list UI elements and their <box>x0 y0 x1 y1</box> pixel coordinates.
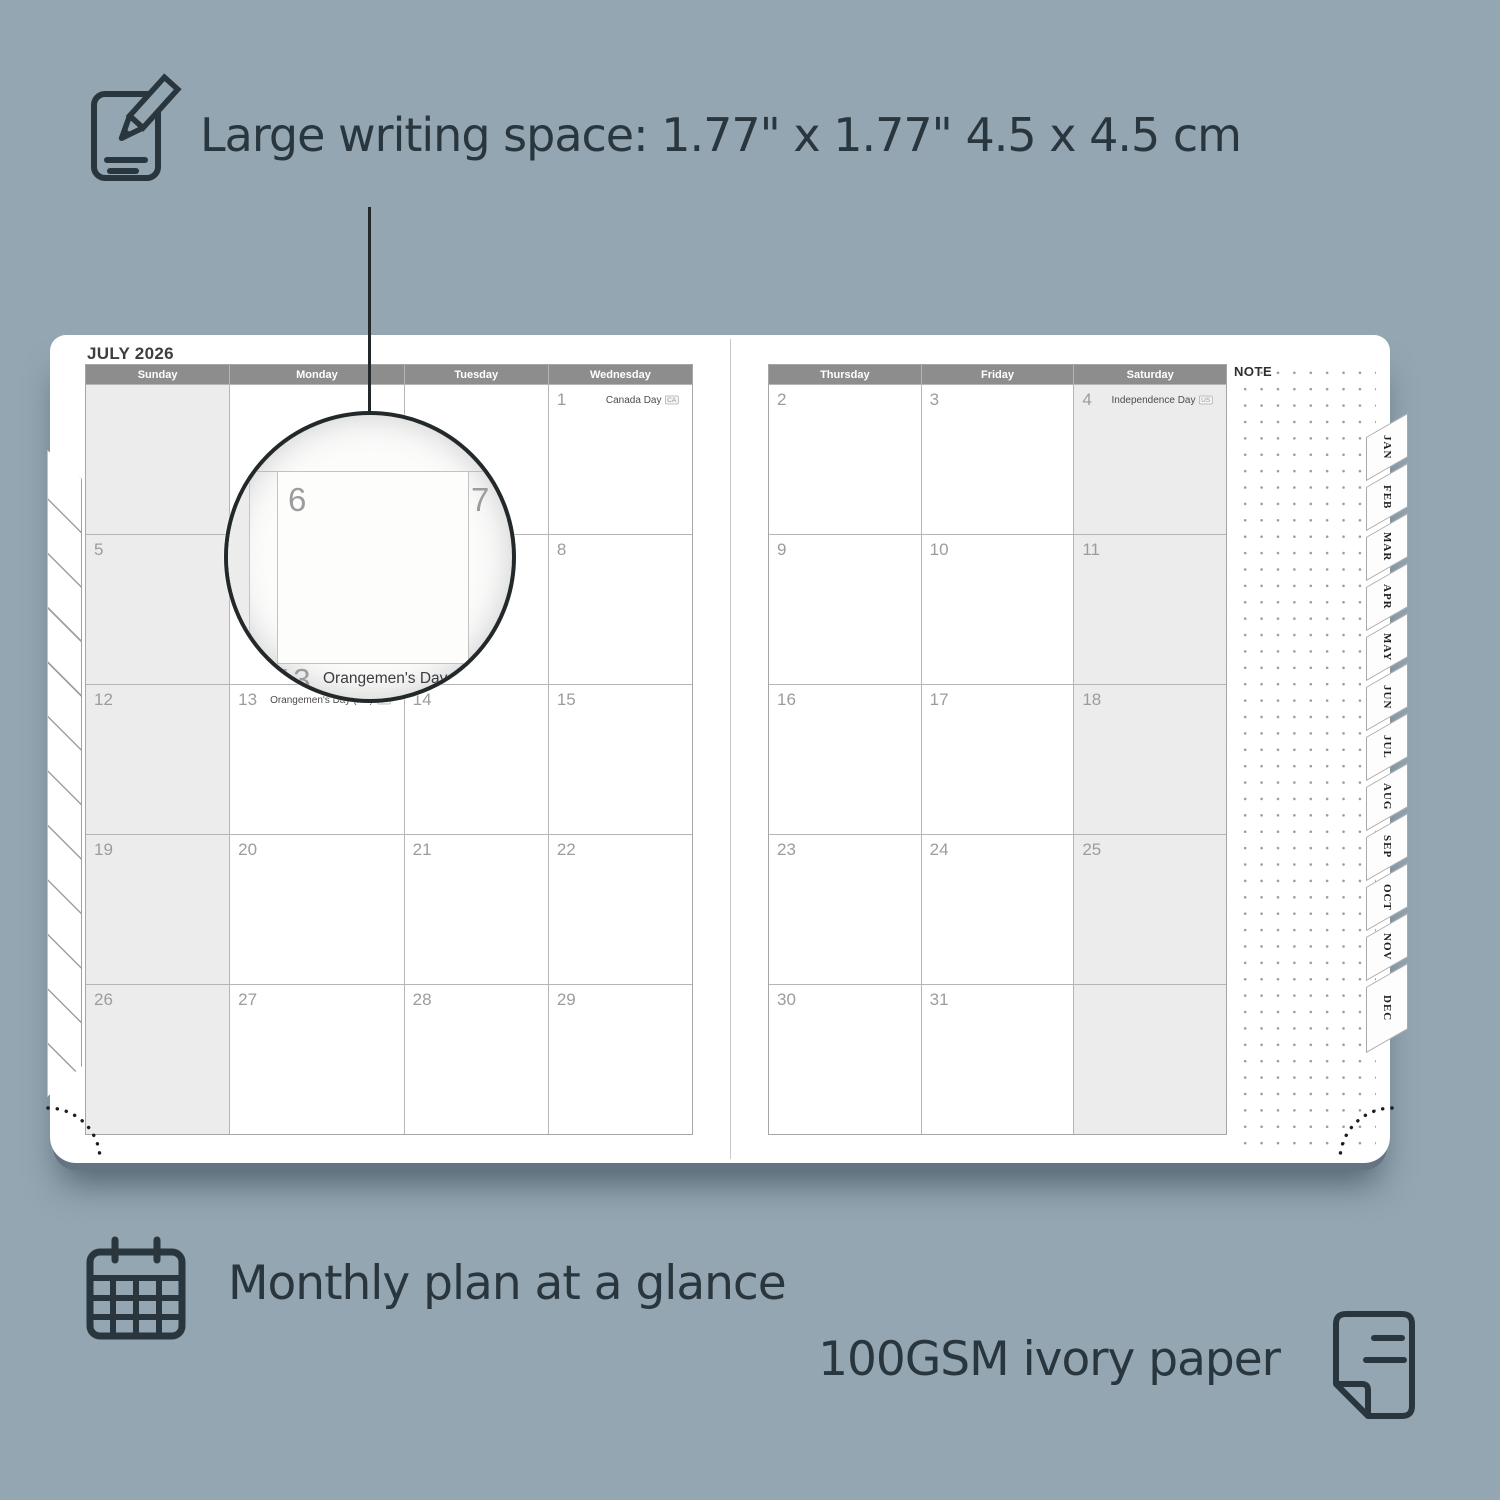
calendar-cell-20: 20 <box>230 835 404 984</box>
calendar-cell-27: 27 <box>230 985 404 1134</box>
country-badge: CA <box>665 396 678 405</box>
calendar-cell-25: 25 <box>1074 835 1226 984</box>
calendar-cell-17: 17 <box>922 685 1074 834</box>
calendar-cell-18: 18 <box>1074 685 1226 834</box>
day-header-saturday: Saturday <box>1074 365 1226 384</box>
callout-pointer-line <box>368 207 371 415</box>
date-number: 26 <box>94 991 113 1010</box>
date-number: 20 <box>238 841 257 860</box>
magnified-shaded-column <box>228 471 250 699</box>
day-header-friday: Friday <box>922 365 1074 384</box>
date-number: 19 <box>94 841 113 860</box>
calendar-cell-29: 29 <box>549 985 692 1134</box>
uk-holiday-badge: UK <box>490 672 513 686</box>
calendar-cell-5: 5 <box>86 535 229 684</box>
month-tab-index: JANFEBMARAPRMAYJUNJULAUGSEPOCTNOVDEC <box>1366 425 1410 1047</box>
date-number: 23 <box>777 841 796 860</box>
paper-sheet-icon <box>1320 1308 1420 1428</box>
date-number: 31 <box>930 991 949 1010</box>
date-number: 27 <box>238 991 257 1010</box>
calendar-grid-right: ThursdayFridaySaturday234Independence Da… <box>768 364 1227 1135</box>
calendar-cell-4: 4Independence DayUS <box>1074 385 1226 534</box>
note-section: NOTE <box>1230 364 1378 1146</box>
date-number: 2 <box>777 391 786 410</box>
calendar-cell-2: 2 <box>769 385 921 534</box>
date-number: 30 <box>777 991 796 1010</box>
date-number: 16 <box>777 691 796 710</box>
date-number: 9 <box>777 541 786 560</box>
calendar-cell-empty <box>1074 985 1226 1134</box>
note-label: NOTE <box>1234 364 1272 379</box>
dot-grid <box>1230 368 1376 1146</box>
date-number: 17 <box>930 691 949 710</box>
date-number: 8 <box>557 541 566 560</box>
calendar-cell-14: 14 <box>405 685 548 834</box>
day-header-thursday: Thursday <box>769 365 921 384</box>
date-number: 28 <box>413 991 432 1010</box>
magnified-date-6: 6 <box>288 481 306 519</box>
month-title: JULY 2026 <box>87 344 174 364</box>
calendar-cell-22: 22 <box>549 835 692 984</box>
stitch-decoration-bottom-left <box>40 1105 102 1167</box>
page-spine-divider <box>730 339 731 1159</box>
date-number: 29 <box>557 991 576 1010</box>
calendar-cell-9: 9 <box>769 535 921 684</box>
date-number: 18 <box>1082 691 1101 710</box>
calendar-cell-13: 13Orangemen's Day (n.i.)UK <box>230 685 404 834</box>
date-number: 5 <box>94 541 103 560</box>
date-number: 12 <box>94 691 113 710</box>
date-number: 15 <box>557 691 576 710</box>
calendar-cell-30: 30 <box>769 985 921 1134</box>
country-badge: US <box>1199 396 1212 405</box>
calendar-cell-8: 8 <box>549 535 692 684</box>
product-infographic: Large writing space: 1.77" x 1.77" 4.5 x… <box>0 0 1500 1500</box>
date-number: 3 <box>930 391 939 410</box>
date-number: 1 <box>557 391 566 410</box>
holiday-label: Independence DayUS <box>1112 391 1218 406</box>
day-header-monday: Monday <box>230 365 404 384</box>
magnifier-circle: 6 7 13 Orangemen's Day (n.i.) UK <box>224 411 516 703</box>
day-header-wednesday: Wednesday <box>549 365 692 384</box>
calendar-cell-19: 19 <box>86 835 229 984</box>
holiday-label: Canada DayCA <box>606 391 684 406</box>
magnified-date-7: 7 <box>471 481 489 519</box>
calendar-cell-10: 10 <box>922 535 1074 684</box>
calendar-cell-16: 16 <box>769 685 921 834</box>
calendar-cell-23: 23 <box>769 835 921 984</box>
calendar-cell-26: 26 <box>86 985 229 1134</box>
notepad-pencil-icon <box>86 68 188 186</box>
calendar-cell-empty <box>86 385 229 534</box>
day-header-sunday: Sunday <box>86 365 229 384</box>
page-edge-hatch-decoration <box>47 450 82 1097</box>
stitch-decoration-bottom-right <box>1338 1105 1400 1167</box>
planner-spread: JULY 2026 SundayMondayTuesdayWednesday1C… <box>50 335 1390 1163</box>
calendar-cell-1: 1Canada DayCA <box>549 385 692 534</box>
date-number: 4 <box>1082 391 1091 410</box>
paper-caption: 100GSM ivory paper <box>640 1332 1280 1387</box>
date-number: 10 <box>930 541 949 560</box>
day-header-tuesday: Tuesday <box>405 365 548 384</box>
date-number: 11 <box>1082 541 1100 560</box>
writing-space-caption: Large writing space: 1.77" x 1.77" 4.5 x… <box>200 108 1241 162</box>
date-number: 25 <box>1082 841 1101 860</box>
magnified-holiday-text: Orangemen's Day (n.i.) <box>323 670 483 688</box>
magnified-holiday: Orangemen's Day (n.i.) UK <box>323 670 513 688</box>
magnified-date-13: 13 <box>276 662 310 698</box>
calendar-cell-12: 12 <box>86 685 229 834</box>
calendar-cell-3: 3 <box>922 385 1074 534</box>
calendar-cell-31: 31 <box>922 985 1074 1134</box>
date-number: 24 <box>930 841 949 860</box>
calendar-cell-28: 28 <box>405 985 548 1134</box>
calendar-grid-icon <box>85 1236 187 1340</box>
calendar-cell-11: 11 <box>1074 535 1226 684</box>
date-number: 21 <box>413 841 432 860</box>
calendar-cell-15: 15 <box>549 685 692 834</box>
monthly-plan-caption: Monthly plan at a glance <box>228 1256 786 1311</box>
calendar-cell-24: 24 <box>922 835 1074 984</box>
date-number: 22 <box>557 841 576 860</box>
calendar-cell-21: 21 <box>405 835 548 984</box>
